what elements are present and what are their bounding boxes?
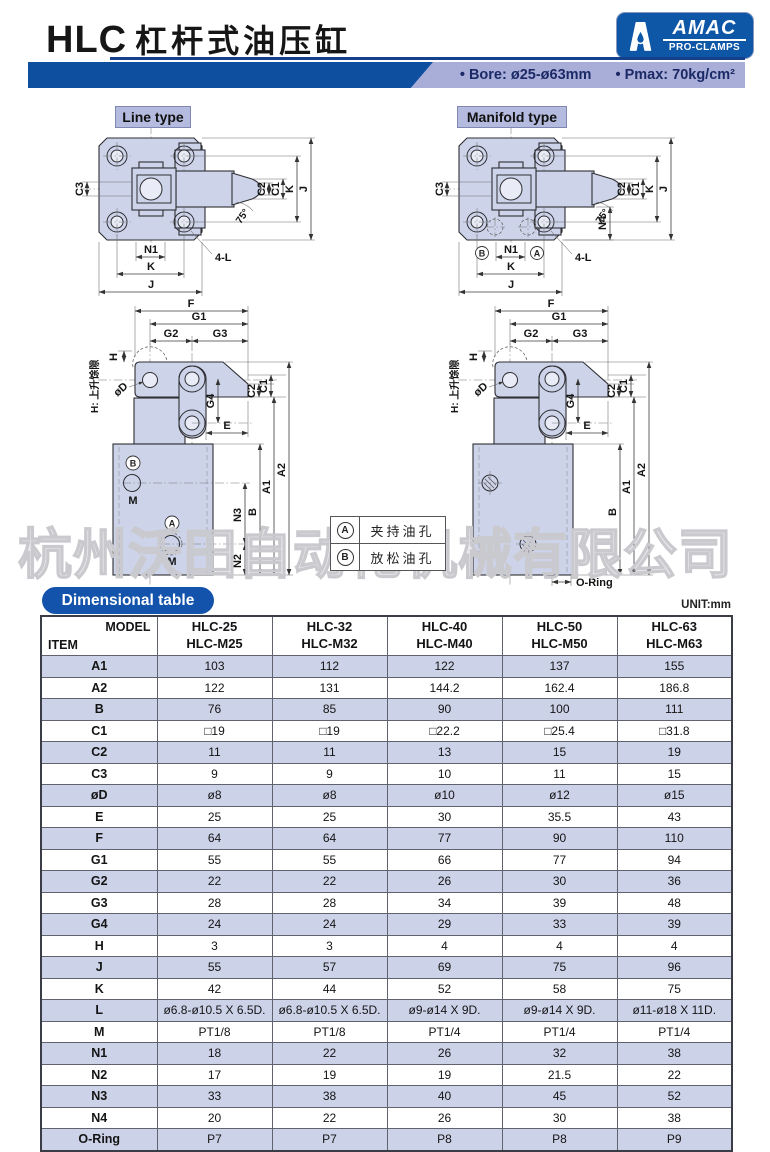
item-cell: G3 — [41, 892, 157, 914]
value-cell: 155 — [617, 656, 732, 678]
dim-label-e: E — [223, 420, 230, 432]
dim-label-c2: C2 — [256, 182, 268, 196]
item-cell: N2 — [41, 1064, 157, 1086]
table-row: øDø8ø8ø10ø12ø15 — [41, 785, 732, 807]
stroke-note: H: 上升馀隙 — [88, 360, 101, 413]
value-cell: □25.4 — [502, 720, 617, 742]
table-row: H33444 — [41, 935, 732, 957]
dim-label-angle: 75° — [234, 207, 252, 226]
value-cell: ø11-ø18 X 11D. — [617, 1000, 732, 1022]
dimensional-table-heading: Dimensional table — [42, 587, 214, 614]
spec-bore: • Bore: ø25-ø63mm — [460, 67, 592, 83]
value-cell: 75 — [617, 978, 732, 1000]
value-cell: 26 — [387, 871, 502, 893]
table-row: K4244525875 — [41, 978, 732, 1000]
item-cell: N4 — [41, 1107, 157, 1129]
table-row: C399101115 — [41, 763, 732, 785]
value-cell: 48 — [617, 892, 732, 914]
value-cell: 11 — [502, 763, 617, 785]
dim-label-c3: C3 — [74, 182, 86, 196]
value-cell: 42 — [157, 978, 272, 1000]
line-type-side-view: F G1 G2 G3 H H: 上升馀隙 øD C2 C1 G4 E — [88, 298, 293, 587]
value-cell: ø9-ø14 X 9D. — [502, 1000, 617, 1022]
value-cell: 162.4 — [502, 677, 617, 699]
value-cell: □31.8 — [617, 720, 732, 742]
pivot-hole — [143, 373, 158, 388]
value-cell: 18 — [157, 1043, 272, 1065]
port-b-symbol: B — [337, 549, 354, 566]
value-cell: 76 — [157, 699, 272, 721]
spec-text: • Bore: ø25-ø63mm • Pmax: 70kg/cm² — [460, 62, 735, 88]
model-column-header: HLC-32HLC-M32 — [272, 616, 387, 656]
page-title: HLC杠杆式油压缸 — [46, 16, 351, 62]
value-cell: 55 — [157, 849, 272, 871]
table-row: E25253035.543 — [41, 806, 732, 828]
item-cell: M — [41, 1021, 157, 1043]
value-cell: PT1/4 — [387, 1021, 502, 1043]
model-column-header: HLC-50HLC-M50 — [502, 616, 617, 656]
value-cell: 30 — [502, 871, 617, 893]
spec-bar: • Bore: ø25-ø63mm • Pmax: 70kg/cm² — [28, 62, 745, 88]
legend-label-a: 夹持油孔 — [360, 517, 446, 544]
value-cell: 20 — [157, 1107, 272, 1129]
value-cell: ø8 — [157, 785, 272, 807]
manifold-type-top-view — [434, 125, 675, 296]
value-cell: 9 — [157, 763, 272, 785]
value-cell: 19 — [617, 742, 732, 764]
item-cell: C1 — [41, 720, 157, 742]
dim-label-b: B — [247, 508, 259, 516]
value-cell: 25 — [157, 806, 272, 828]
item-cell: N3 — [41, 1086, 157, 1108]
lever-arm-top — [176, 171, 234, 207]
legend-key-a: A — [331, 517, 360, 544]
table-row: B768590100111 — [41, 699, 732, 721]
logo-brand-name: AMAC — [663, 18, 746, 41]
value-cell: 34 — [387, 892, 502, 914]
value-cell: 19 — [387, 1064, 502, 1086]
model-header-row: MODEL ITEM HLC-25HLC-M25HLC-32HLC-M32HLC… — [41, 616, 732, 656]
item-cell: N1 — [41, 1043, 157, 1065]
item-cell: J — [41, 957, 157, 979]
table-row: G32828343948 — [41, 892, 732, 914]
table-row: Lø6.8-ø10.5 X 6.5D.ø6.8-ø10.5 X 6.5D.ø9-… — [41, 1000, 732, 1022]
value-cell: 29 — [387, 914, 502, 936]
value-cell: □19 — [272, 720, 387, 742]
dim-label-a2: A2 — [276, 463, 288, 477]
clevis-pin-hole — [140, 178, 162, 200]
model-column-header: HLC-40HLC-M40 — [387, 616, 502, 656]
table-row: G22222263036 — [41, 871, 732, 893]
value-cell: 57 — [272, 957, 387, 979]
value-cell: 100 — [502, 699, 617, 721]
value-cell: 122 — [157, 677, 272, 699]
value-cell: 10 — [387, 763, 502, 785]
value-cell: 96 — [617, 957, 732, 979]
value-cell: PT1/4 — [502, 1021, 617, 1043]
value-cell: ø10 — [387, 785, 502, 807]
value-cell: 26 — [387, 1107, 502, 1129]
dim-label-n4: N4 — [597, 215, 609, 230]
value-cell: □22.2 — [387, 720, 502, 742]
model-column-header: HLC-25HLC-M25 — [157, 616, 272, 656]
value-cell: P8 — [387, 1129, 502, 1151]
value-cell: 30 — [387, 806, 502, 828]
value-cell: ø9-ø14 X 9D. — [387, 1000, 502, 1022]
table-corner-cell: MODEL ITEM — [41, 616, 157, 656]
value-cell: 24 — [272, 914, 387, 936]
value-cell: ø12 — [502, 785, 617, 807]
value-cell: PT1/8 — [272, 1021, 387, 1043]
value-cell: PT1/4 — [617, 1021, 732, 1043]
value-cell: 24 — [157, 914, 272, 936]
value-cell: P9 — [617, 1129, 732, 1151]
item-cell: F — [41, 828, 157, 850]
item-cell: C3 — [41, 763, 157, 785]
table-row: N11822263238 — [41, 1043, 732, 1065]
rod-neck — [134, 398, 185, 444]
value-cell: 32 — [502, 1043, 617, 1065]
value-cell: 64 — [157, 828, 272, 850]
value-cell: 4 — [502, 935, 617, 957]
table-row: C21111131519 — [41, 742, 732, 764]
value-cell: 38 — [617, 1107, 732, 1129]
value-cell: ø6.8-ø10.5 X 6.5D. — [157, 1000, 272, 1022]
value-cell: 186.8 — [617, 677, 732, 699]
value-cell: 52 — [387, 978, 502, 1000]
line-type-top-view: C3 C2 C1 K J 75° N1 K J 4-L — [74, 125, 315, 296]
item-cell: G4 — [41, 914, 157, 936]
table-row: F64647790110 — [41, 828, 732, 850]
value-cell: 3 — [157, 935, 272, 957]
dim-label-c2-side: C2 — [246, 384, 258, 398]
dim-label-c1: C1 — [270, 182, 282, 196]
value-cell: 40 — [387, 1086, 502, 1108]
page-title-chinese: 杠杆式油压缸 — [135, 23, 351, 59]
value-cell: PT1/8 — [157, 1021, 272, 1043]
port-b-label: B — [479, 249, 486, 259]
table-row: G42424293339 — [41, 914, 732, 936]
value-cell: 22 — [272, 871, 387, 893]
dim-label-k-bottom: K — [147, 261, 155, 273]
model-column-header: HLC-63HLC-M63 — [617, 616, 732, 656]
value-cell: 22 — [617, 1064, 732, 1086]
item-cell: L — [41, 1000, 157, 1022]
value-cell: 22 — [272, 1107, 387, 1129]
corner-item-label: ITEM — [48, 637, 78, 653]
value-cell: 43 — [617, 806, 732, 828]
dim-label-g2: G2 — [164, 328, 179, 340]
table-row: A2122131144.2162.4186.8 — [41, 677, 732, 699]
line-type-label: Line type — [115, 106, 191, 128]
value-cell: ø8 — [272, 785, 387, 807]
legend-row-a: A 夹持油孔 — [331, 517, 446, 544]
legend-key-b: B — [331, 544, 360, 571]
item-cell: C2 — [41, 742, 157, 764]
value-cell: 22 — [157, 871, 272, 893]
value-cell: 94 — [617, 849, 732, 871]
dim-label-n3: N3 — [232, 508, 244, 522]
corner-model-label: MODEL — [105, 619, 150, 635]
spec-pmax: • Pmax: 70kg/cm² — [615, 67, 735, 83]
header-rule-line — [110, 57, 745, 60]
port-a-thread-label: M — [167, 556, 176, 568]
value-cell: 131 — [272, 677, 387, 699]
dim-label-h: H — [108, 353, 120, 361]
value-cell: 111 — [617, 699, 732, 721]
value-cell: 30 — [502, 1107, 617, 1129]
value-cell: 19 — [272, 1064, 387, 1086]
value-cell: 144.2 — [387, 677, 502, 699]
dim-label-od: øD — [112, 380, 131, 399]
item-cell: A1 — [41, 656, 157, 678]
table-row: N42022263038 — [41, 1107, 732, 1129]
item-cell: E — [41, 806, 157, 828]
dim-label-g1: G1 — [192, 311, 207, 323]
value-cell: 77 — [387, 828, 502, 850]
value-cell: 26 — [387, 1043, 502, 1065]
value-cell: 77 — [502, 849, 617, 871]
legend-row-b: B 放松油孔 — [331, 544, 446, 571]
value-cell: 44 — [272, 978, 387, 1000]
value-cell: 11 — [157, 742, 272, 764]
dim-label-g3: G3 — [213, 328, 228, 340]
item-cell: O-Ring — [41, 1129, 157, 1151]
value-cell: 110 — [617, 828, 732, 850]
amac-a-drop-icon — [624, 18, 657, 54]
dim-label-n1: N1 — [144, 244, 158, 256]
value-cell: 3 — [272, 935, 387, 957]
manifold-type-label: Manifold type — [457, 106, 567, 128]
value-cell: 103 — [157, 656, 272, 678]
dim-label-j-bottom: J — [148, 279, 154, 291]
value-cell: 58 — [502, 978, 617, 1000]
port-a-side-label: A — [169, 519, 176, 529]
dim-label-n2: N2 — [232, 554, 244, 568]
value-cell: 112 — [272, 656, 387, 678]
value-cell: 33 — [157, 1086, 272, 1108]
manifold-type-side-view — [448, 298, 653, 587]
value-cell: 85 — [272, 699, 387, 721]
value-cell: 28 — [272, 892, 387, 914]
dim-label-j: J — [298, 186, 310, 192]
value-cell: 38 — [617, 1043, 732, 1065]
port-b-thread-label: M — [128, 495, 137, 507]
value-cell: ø15 — [617, 785, 732, 807]
dim-label-f: F — [188, 298, 195, 310]
dim-label-4l: 4-L — [215, 252, 232, 264]
value-cell: □19 — [157, 720, 272, 742]
value-cell: 90 — [387, 699, 502, 721]
dimension-table: MODEL ITEM HLC-25HLC-M25HLC-32HLC-M32HLC… — [40, 615, 733, 1152]
brand-logo: AMAC PRO-CLAMPS — [616, 12, 754, 59]
item-cell: H — [41, 935, 157, 957]
item-cell: G1 — [41, 849, 157, 871]
dim-label-k: K — [284, 185, 296, 193]
table-row: N33338404552 — [41, 1086, 732, 1108]
item-cell: A2 — [41, 677, 157, 699]
value-cell: 28 — [157, 892, 272, 914]
value-cell: 15 — [617, 763, 732, 785]
value-cell: 55 — [272, 849, 387, 871]
table-row: N217191921.522 — [41, 1064, 732, 1086]
value-cell: 75 — [502, 957, 617, 979]
value-cell: 137 — [502, 656, 617, 678]
value-cell: 122 — [387, 656, 502, 678]
unit-label: UNIT:mm — [560, 599, 731, 611]
logo-sub-name: PRO-CLAMPS — [663, 42, 746, 54]
page-title-model: HLC — [46, 19, 127, 61]
spec-bar-accent — [28, 62, 433, 88]
value-cell: 52 — [617, 1086, 732, 1108]
value-cell: P8 — [502, 1129, 617, 1151]
value-cell: 69 — [387, 957, 502, 979]
table-row: G15555667794 — [41, 849, 732, 871]
legend-label-b: 放松油孔 — [360, 544, 446, 571]
item-cell: øD — [41, 785, 157, 807]
item-cell: K — [41, 978, 157, 1000]
value-cell: 90 — [502, 828, 617, 850]
value-cell: 17 — [157, 1064, 272, 1086]
value-cell: 4 — [617, 935, 732, 957]
dim-label-g4: G4 — [205, 393, 217, 409]
value-cell: 45 — [502, 1086, 617, 1108]
table-row: J5557697596 — [41, 957, 732, 979]
value-cell: 64 — [272, 828, 387, 850]
value-cell: P7 — [272, 1129, 387, 1151]
value-cell: 38 — [272, 1086, 387, 1108]
port-legend: A 夹持油孔 B 放松油孔 — [330, 516, 446, 571]
value-cell: 21.5 — [502, 1064, 617, 1086]
dimension-table-body: A1103112122137155A2122131144.2162.4186.8… — [41, 656, 732, 1151]
dim-label-a1: A1 — [261, 480, 273, 494]
value-cell: 36 — [617, 871, 732, 893]
value-cell: 15 — [502, 742, 617, 764]
dim-label-oring: O-Ring — [576, 577, 613, 589]
port-a-symbol: A — [337, 522, 354, 539]
table-row: A1103112122137155 — [41, 656, 732, 678]
logo-text: AMAC PRO-CLAMPS — [663, 18, 746, 54]
value-cell: ø6.8-ø10.5 X 6.5D. — [272, 1000, 387, 1022]
value-cell: 66 — [387, 849, 502, 871]
port-b-side-label: B — [130, 459, 137, 469]
value-cell: 55 — [157, 957, 272, 979]
value-cell: 13 — [387, 742, 502, 764]
value-cell: 9 — [272, 763, 387, 785]
table-row: MPT1/8PT1/8PT1/4PT1/4PT1/4 — [41, 1021, 732, 1043]
value-cell: P7 — [157, 1129, 272, 1151]
dim-label-c1-side: C1 — [258, 379, 270, 393]
table-row: C1□19□19□22.2□25.4□31.8 — [41, 720, 732, 742]
value-cell: 11 — [272, 742, 387, 764]
table-row: O-RingP7P7P8P8P9 — [41, 1129, 732, 1151]
value-cell: 25 — [272, 806, 387, 828]
value-cell: 39 — [502, 892, 617, 914]
value-cell: 4 — [387, 935, 502, 957]
item-cell: B — [41, 699, 157, 721]
value-cell: 33 — [502, 914, 617, 936]
value-cell: 39 — [617, 914, 732, 936]
value-cell: 22 — [272, 1043, 387, 1065]
port-a-label: A — [534, 249, 541, 259]
value-cell: 35.5 — [502, 806, 617, 828]
item-cell: G2 — [41, 871, 157, 893]
